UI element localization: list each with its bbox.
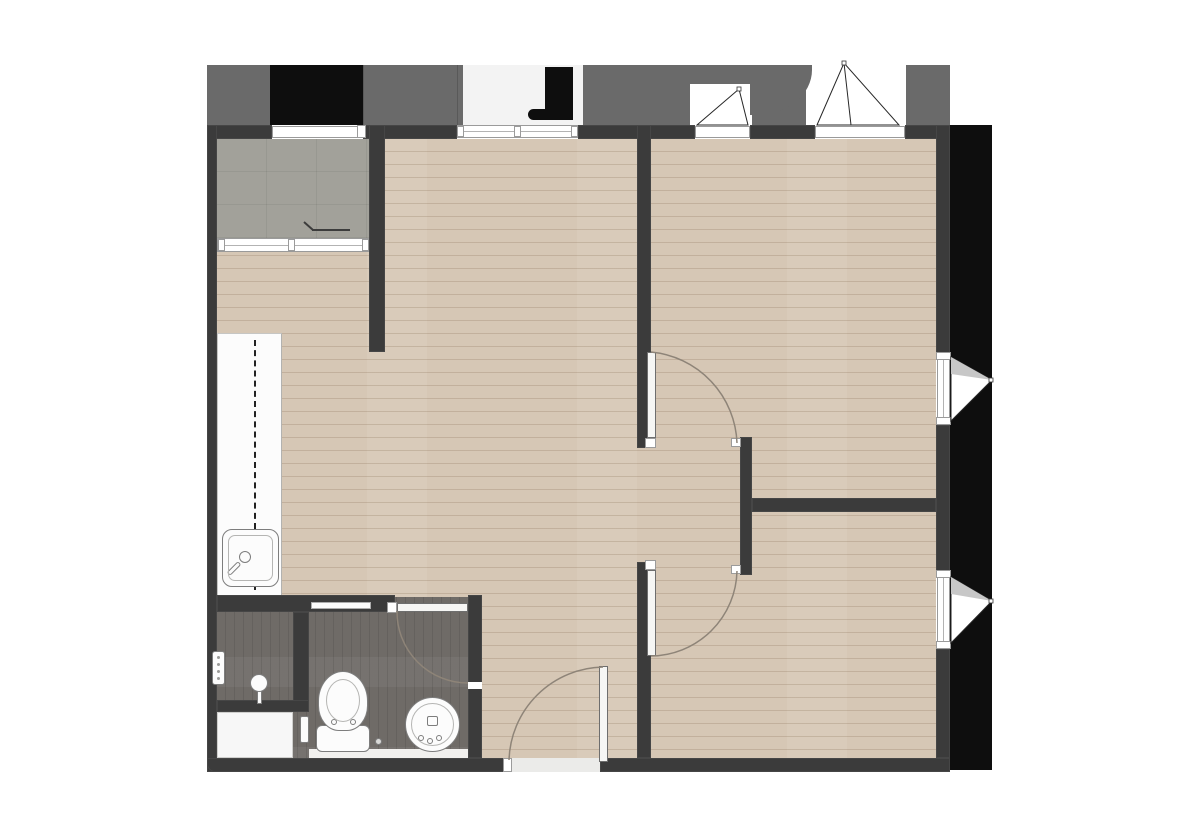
bathroom-door-leaf bbox=[397, 603, 468, 612]
wall-top bbox=[750, 125, 815, 139]
basin-inner-ring bbox=[411, 703, 454, 746]
door-stop-cap bbox=[503, 758, 512, 772]
window-cutout bbox=[806, 65, 906, 125]
door-stop-cap bbox=[387, 602, 397, 613]
top-casement-window-2 bbox=[815, 126, 905, 138]
window-end-cap bbox=[936, 417, 951, 425]
panel-dot bbox=[217, 663, 220, 666]
bath-tray bbox=[217, 712, 293, 758]
wall-shelf bbox=[311, 602, 371, 609]
wall-notch bbox=[468, 682, 482, 689]
door-stop-cap bbox=[731, 565, 741, 574]
wall-right bbox=[936, 649, 950, 758]
slider-mullion bbox=[288, 239, 295, 251]
panel-dot bbox=[217, 670, 220, 673]
bedroom-top-door-leaf bbox=[647, 352, 656, 438]
wall-bottom bbox=[600, 758, 950, 772]
floor-plan bbox=[0, 0, 1200, 828]
wall-right bbox=[936, 425, 950, 571]
door-stop-cap bbox=[645, 560, 656, 570]
window-mullion bbox=[514, 126, 521, 137]
neighbor-door-foot-icon bbox=[528, 109, 573, 120]
exterior-black-block bbox=[270, 65, 363, 125]
window-mullion bbox=[457, 126, 464, 137]
balcony-window bbox=[272, 126, 363, 138]
bedroom-bottom-door-leaf bbox=[647, 570, 656, 656]
toilet-button bbox=[350, 719, 356, 725]
wall-right bbox=[936, 125, 950, 353]
panel-dot bbox=[217, 677, 220, 680]
wall-shower-lintel bbox=[217, 700, 309, 712]
window-end-cap bbox=[936, 641, 951, 649]
wall-balcony-divider bbox=[369, 125, 385, 352]
entrance-threshold bbox=[512, 758, 600, 772]
door-stop-cap bbox=[731, 438, 741, 447]
entrance-door-leaf bbox=[599, 666, 608, 762]
shower-head-stem-icon bbox=[257, 690, 262, 704]
paper-holder bbox=[300, 716, 309, 743]
wall-bottom bbox=[207, 758, 509, 772]
right-casement-window-lower bbox=[937, 571, 950, 649]
shower-head-icon bbox=[250, 674, 268, 692]
band-seam bbox=[363, 65, 364, 125]
window-cutout bbox=[690, 84, 752, 125]
wall-bedroom-divider bbox=[752, 498, 936, 512]
window-end-cap bbox=[357, 125, 366, 138]
slider-mullion bbox=[218, 239, 225, 251]
exterior-black-band-right bbox=[950, 125, 992, 770]
wall-bathroom-right bbox=[468, 595, 482, 758]
band-seam bbox=[457, 65, 458, 125]
panel-dot bbox=[217, 656, 220, 659]
toilet-seat bbox=[326, 679, 360, 722]
top-casement-window-1 bbox=[695, 126, 750, 138]
window-end-cap bbox=[936, 352, 951, 360]
window-mullion bbox=[571, 126, 578, 137]
slider-mullion bbox=[362, 239, 369, 251]
wall-shower-partition bbox=[293, 612, 309, 712]
window-end-cap bbox=[936, 570, 951, 578]
balcony-floor bbox=[217, 139, 369, 238]
kitchen-sink-basin bbox=[228, 535, 273, 581]
floor-drain-icon bbox=[375, 738, 382, 745]
wall-center-stub bbox=[740, 437, 752, 575]
door-stop-cap bbox=[645, 438, 656, 448]
right-casement-window-upper bbox=[937, 353, 950, 425]
